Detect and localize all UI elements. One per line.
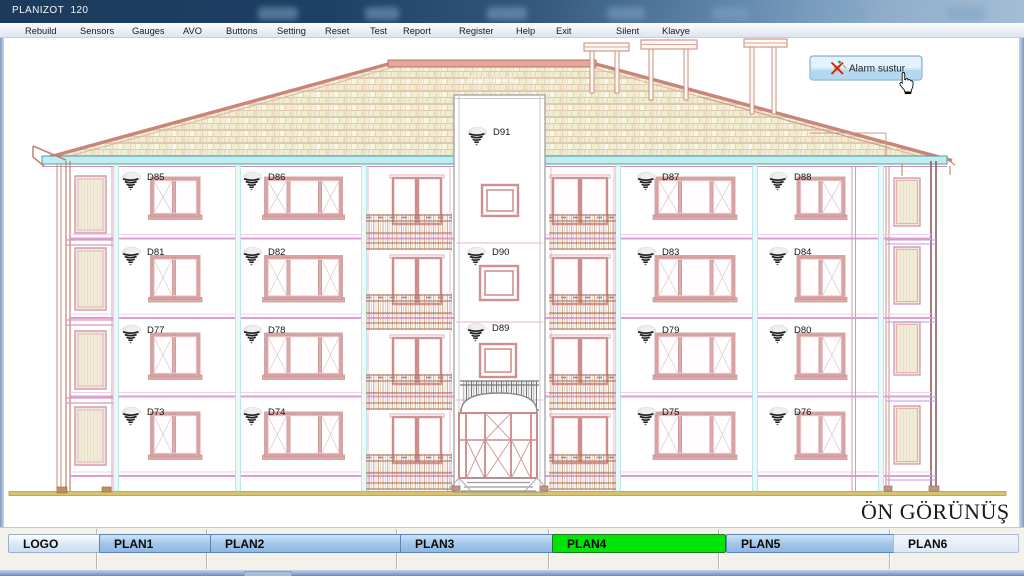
svg-text:Watermark: Watermark [468, 74, 515, 84]
svg-text:D87: D87 [662, 172, 679, 183]
svg-text:D91: D91 [493, 127, 510, 138]
svg-text:D89: D89 [492, 323, 509, 334]
svg-text:ÖN GÖRÜNÜŞ: ÖN GÖRÜNÜŞ [861, 499, 1010, 524]
svg-text:D86: D86 [268, 172, 285, 183]
svg-text:Alarm sustur: Alarm sustur [849, 64, 906, 75]
svg-text:D75: D75 [662, 407, 679, 418]
svg-text:D88: D88 [794, 172, 811, 183]
svg-text:D84: D84 [794, 247, 811, 258]
svg-text:D83: D83 [662, 247, 679, 258]
svg-text:D74: D74 [268, 407, 285, 418]
svg-text:D85: D85 [147, 172, 164, 183]
svg-text:D73: D73 [147, 407, 164, 418]
svg-text:D77: D77 [147, 325, 164, 336]
svg-text:D80: D80 [794, 325, 811, 336]
svg-text:D76: D76 [794, 407, 811, 418]
svg-text:D90: D90 [492, 247, 509, 258]
svg-text:D81: D81 [147, 247, 164, 258]
svg-text:D82: D82 [268, 247, 285, 258]
svg-text:D78: D78 [268, 325, 285, 336]
svg-text:D79: D79 [662, 325, 679, 336]
